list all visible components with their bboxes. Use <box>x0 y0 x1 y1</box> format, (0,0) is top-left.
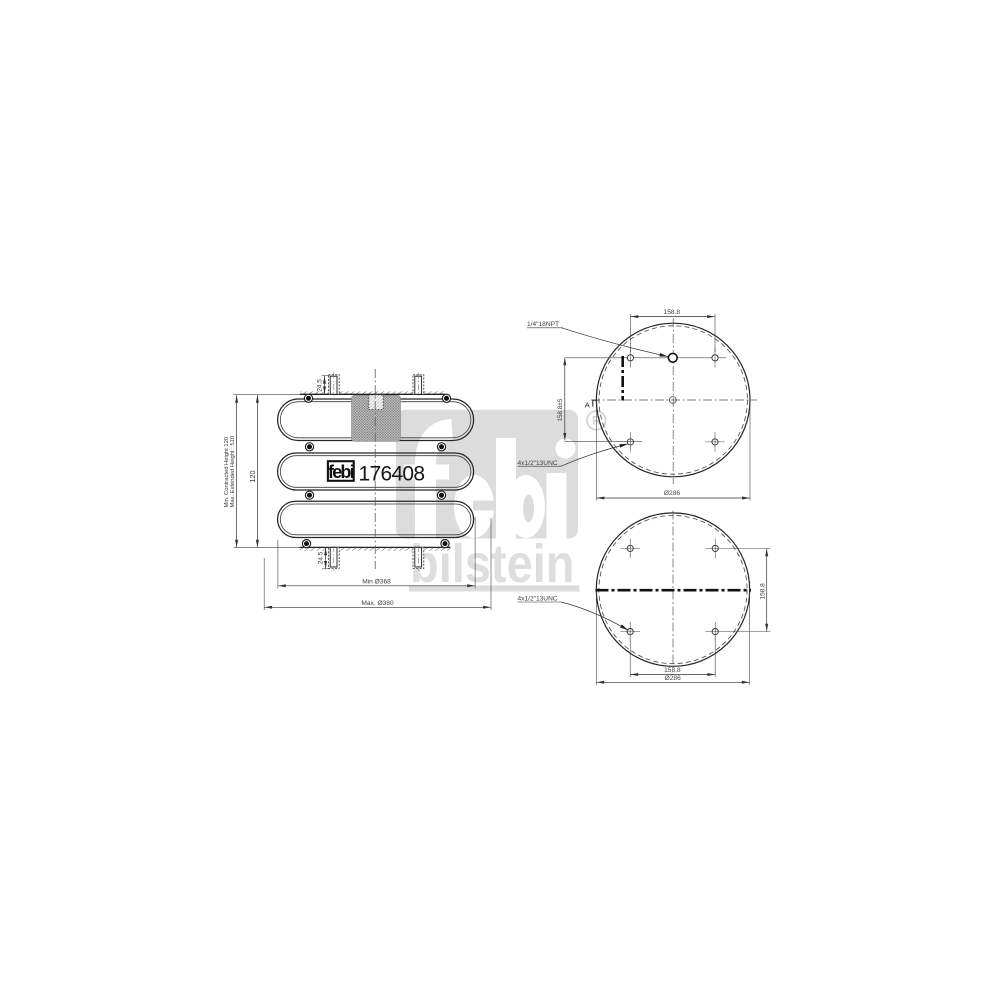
svg-text:bilstein: bilstein <box>410 533 574 594</box>
svg-text:Max. Ø380: Max. Ø380 <box>361 600 394 607</box>
svg-text:4x1/2"13UNC: 4x1/2"13UNC <box>518 460 558 467</box>
svg-text:1/4"18NPT: 1/4"18NPT <box>527 321 559 328</box>
svg-text:24.5: 24.5 <box>316 379 323 392</box>
svg-text:158.8: 158.8 <box>759 583 766 600</box>
svg-text:158.8±5: 158.8±5 <box>557 398 564 421</box>
svg-text:120: 120 <box>248 471 257 483</box>
svg-text:A: A <box>585 401 590 410</box>
svg-text:158.8: 158.8 <box>664 667 681 674</box>
svg-text:Ø286: Ø286 <box>664 490 680 497</box>
svg-text:Min Ø368: Min Ø368 <box>362 578 391 585</box>
svg-text:158.8: 158.8 <box>664 309 681 316</box>
svg-text:176408: 176408 <box>359 462 425 485</box>
svg-text:Max. Extended Height : 510: Max. Extended Height : 510 <box>230 436 236 508</box>
svg-text:Ø286: Ø286 <box>665 675 681 682</box>
svg-text:febi: febi <box>328 462 354 482</box>
svg-text:24.5: 24.5 <box>317 551 324 564</box>
svg-text:4x1/2"13UNC: 4x1/2"13UNC <box>518 596 558 603</box>
